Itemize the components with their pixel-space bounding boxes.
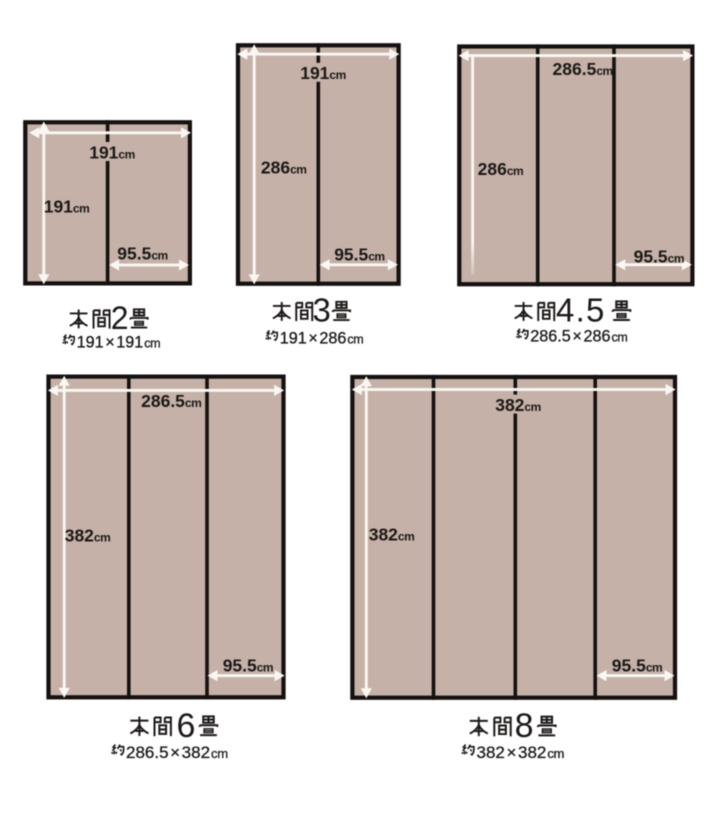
svg-text:191×286cm: 191×286cm — [280, 329, 364, 347]
svg-text:286.5×286cm: 286.5×286cm — [530, 328, 627, 346]
svg-text:4.5: 4.5 — [556, 292, 605, 329]
svg-text:286.5×382cm: 286.5×382cm — [126, 743, 228, 762]
svg-text:2: 2 — [111, 300, 129, 336]
svg-text:6: 6 — [176, 707, 195, 745]
svg-text:382×382cm: 382×382cm — [477, 743, 565, 762]
svg-text:3: 3 — [313, 292, 331, 329]
svg-text:191×191cm: 191×191cm — [77, 334, 161, 352]
svg-text:8: 8 — [515, 707, 534, 745]
